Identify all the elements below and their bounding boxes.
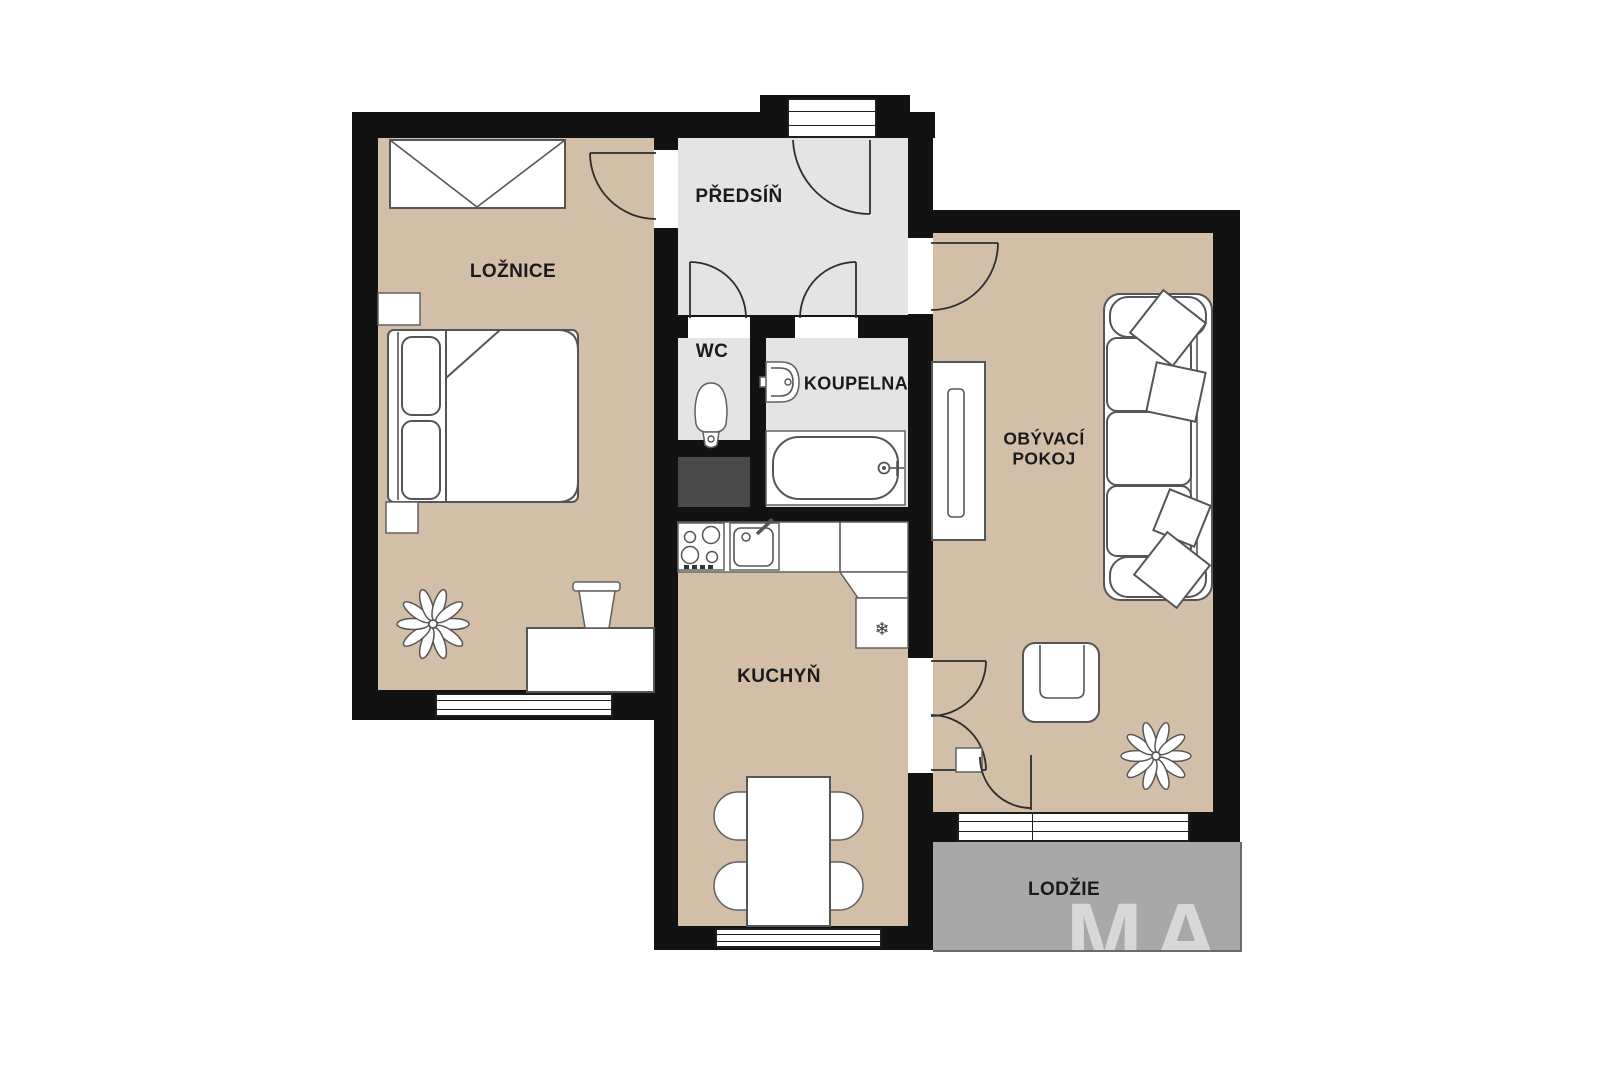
wall-living-right [1213,210,1240,842]
wall-living-top [908,210,1240,233]
floor-bathroom [766,338,908,507]
window-line [437,700,611,701]
entry-door-frame-line [789,125,875,126]
wall-left [352,112,378,720]
wall-balcony-right-stub [1190,812,1213,842]
room-label-koupelna: KOUPELNA [804,374,908,395]
bedroom-window [435,693,613,717]
room-label-predsin: PŘEDSÍŇ [695,186,782,208]
bathroom-door-opening [795,317,858,338]
floor-living-room [933,233,1213,812]
window-line [437,709,611,710]
room-label-lodzie: LODŽIE [1028,879,1100,901]
wall-balcony-left-stub [933,812,957,842]
window-line [959,831,1188,832]
wall-kitchen-top [654,507,908,522]
room-label-kuchyn: KUCHYŇ [737,666,821,688]
bedroom-door-opening [654,150,678,228]
window-line [959,821,1188,822]
kitchen-window [715,928,882,948]
floor-kitchen [678,522,908,926]
entry-door-frame-line [789,111,875,112]
living-room-door-opening [908,238,933,314]
wc-door-opening [688,317,750,338]
room-label-obyvaci-pokoj: OBÝVACÍ POKOJ [985,429,1103,468]
room-label-wc: WC [696,341,728,363]
kitchen-living-door-opening [908,658,933,773]
utility-shaft [678,457,750,507]
floor-hallway [678,138,908,315]
wall-wc-bath-divider [750,338,766,507]
window-line [717,934,880,935]
wall-mid-vertical [654,138,678,950]
floor-bedroom [378,138,654,690]
balcony-door-divider [1032,814,1033,840]
room-label-loznice: LOŽNICE [470,261,556,283]
window-line [717,941,880,942]
balcony-window [957,812,1190,842]
floor-plan: MA [0,0,1600,1066]
entry-door-frame [787,98,877,138]
wall-wc-bottom [678,440,750,457]
